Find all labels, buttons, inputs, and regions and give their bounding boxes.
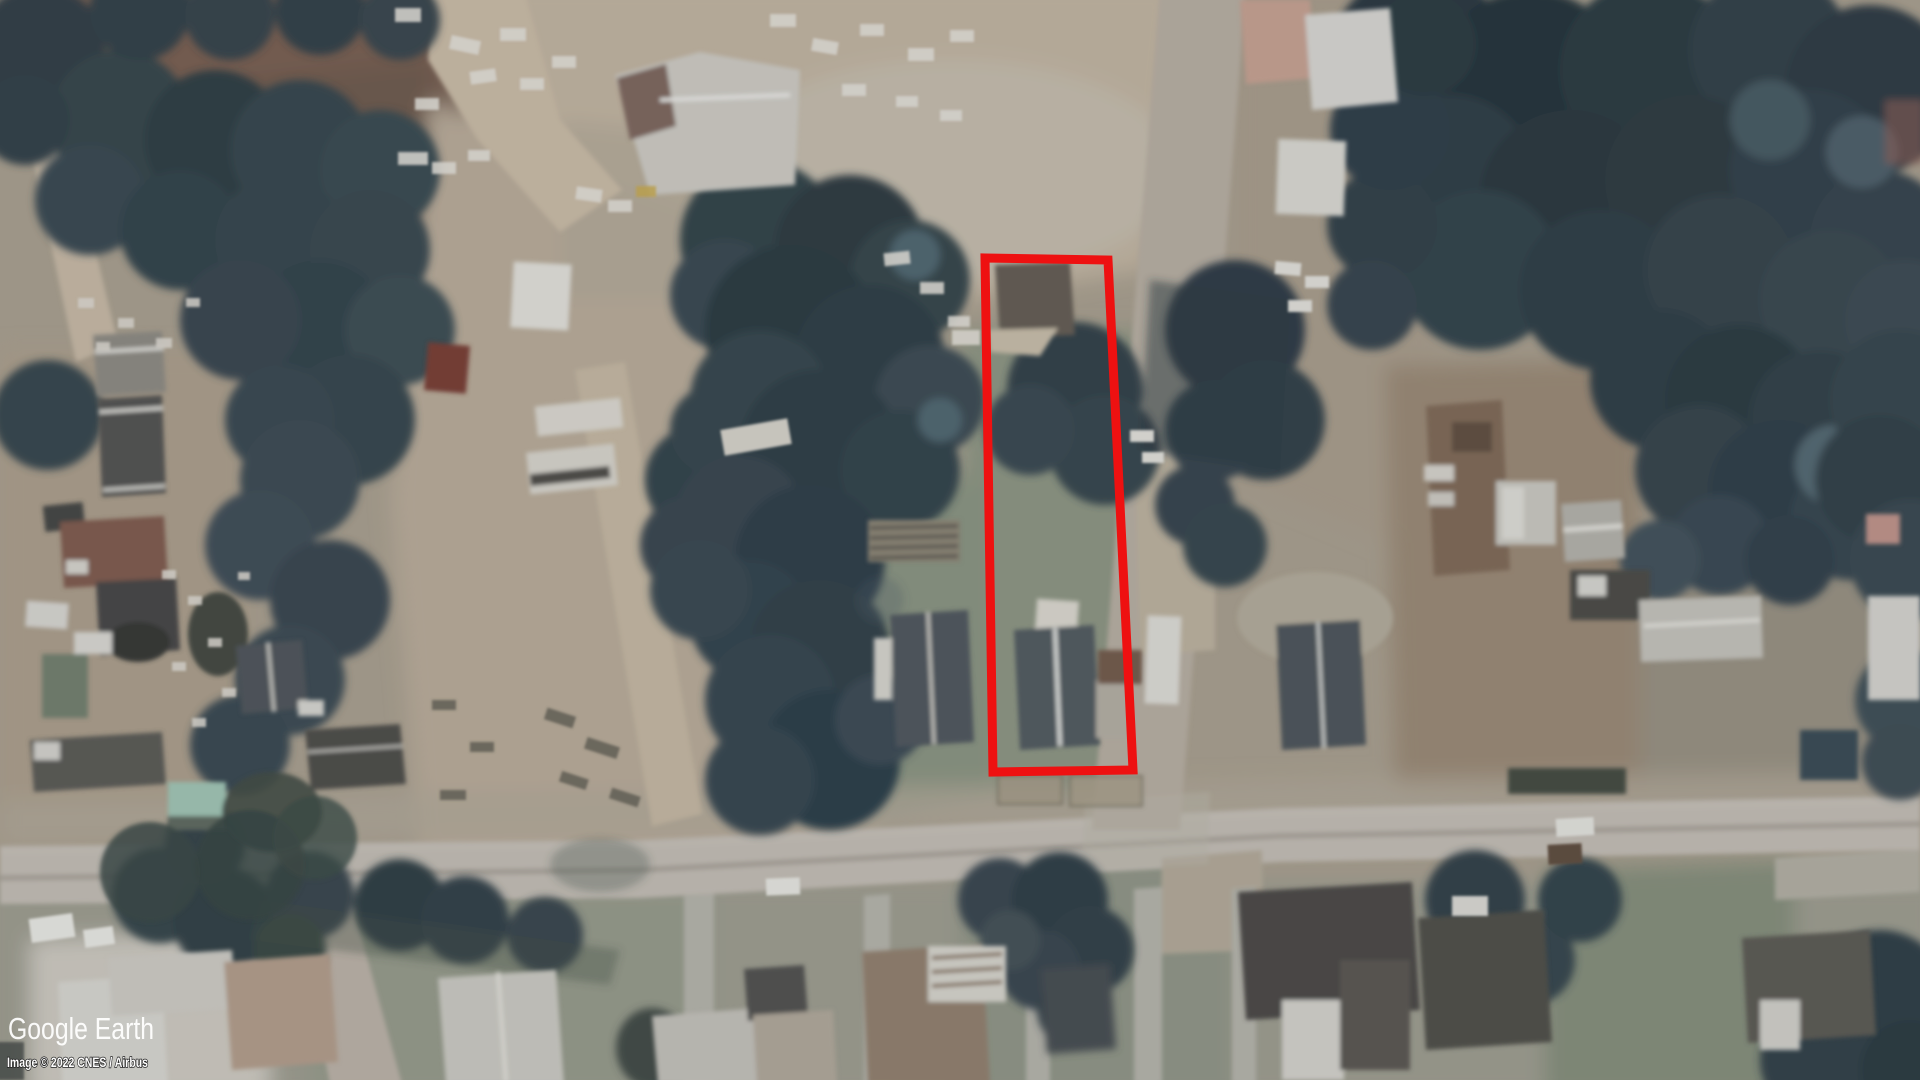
svg-text:Google Earth: Google Earth bbox=[8, 1011, 154, 1046]
svg-text:Image © 2022 CNES / Airbus: Image © 2022 CNES / Airbus bbox=[7, 1054, 148, 1070]
